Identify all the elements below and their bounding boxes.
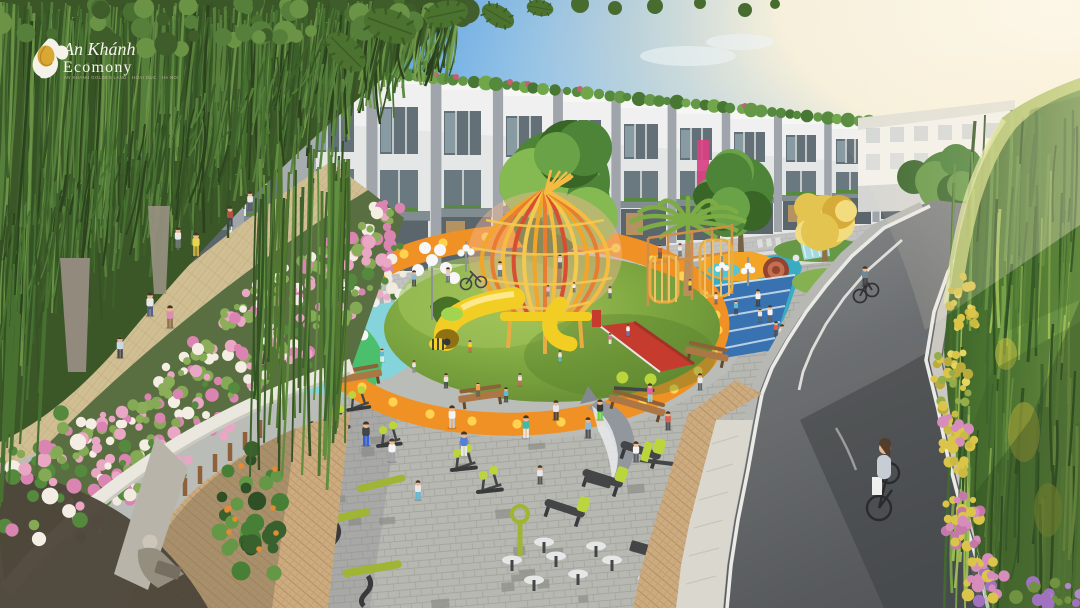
- svg-text:AN KHANH GOLDEN LAND · HOAI DU: AN KHANH GOLDEN LAND · HOAI DUC · HA NOI: [64, 75, 179, 80]
- svg-text:Ecomony: Ecomony: [63, 59, 133, 76]
- svg-text:An Khánh: An Khánh: [62, 39, 136, 59]
